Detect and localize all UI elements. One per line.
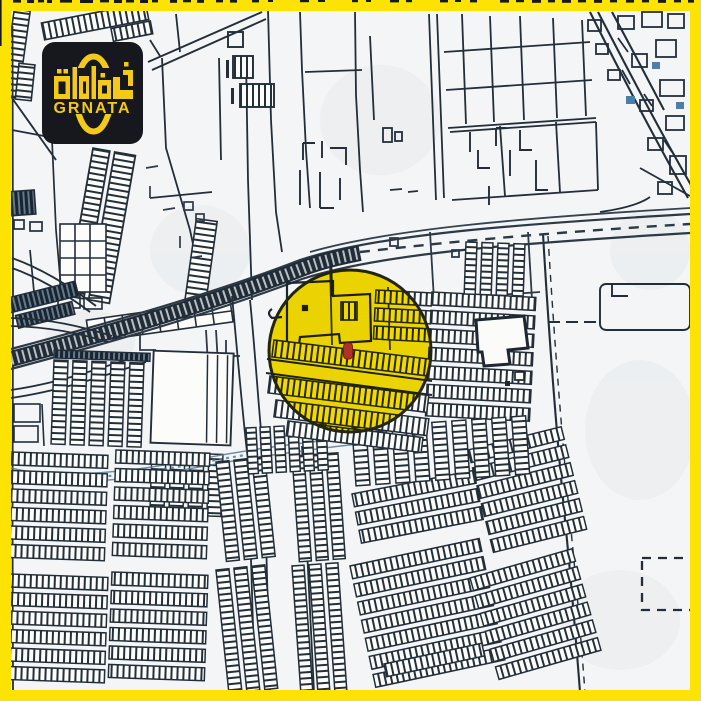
svg-text:GRNATA: GRNATA bbox=[53, 100, 131, 117]
